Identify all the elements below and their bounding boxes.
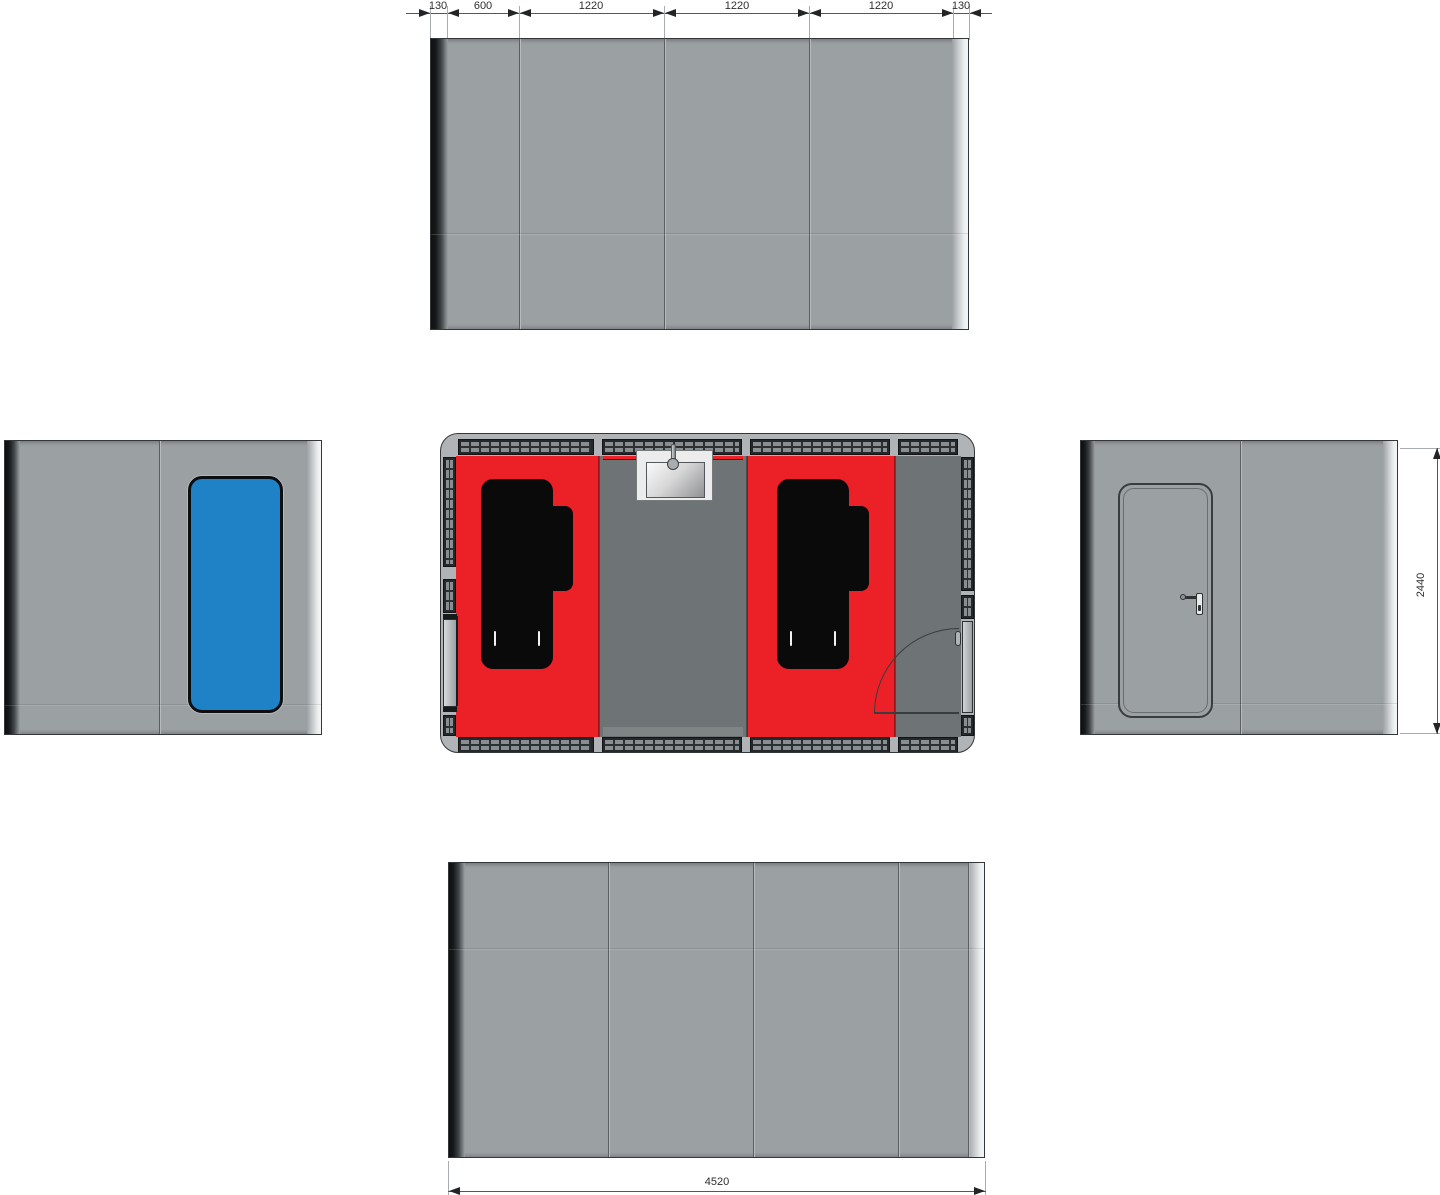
- wall-panel: [458, 439, 594, 455]
- corner-post-dark: [449, 863, 465, 1157]
- wall-panel: [443, 715, 456, 736]
- wall-insulation-pattern: [753, 740, 887, 750]
- dim-arrow: [665, 9, 676, 17]
- panel-seam: [753, 863, 755, 1157]
- panel-seam: [809, 39, 811, 329]
- door-open-position: [874, 712, 959, 714]
- corner-post-light: [968, 863, 984, 1157]
- window-jamb: [443, 614, 457, 619]
- floor-plan-view: [440, 433, 975, 753]
- dim-label-2440: 2440: [1415, 573, 1427, 597]
- wall-insulation-pattern: [446, 460, 453, 564]
- threshold-strip: [603, 727, 743, 736]
- toilet-left-cistern: [545, 506, 573, 591]
- wall-panel: [898, 439, 958, 455]
- dim-arrow: [974, 1187, 985, 1195]
- dim-arrow: [810, 9, 821, 17]
- door-handle-knob: [1180, 594, 1186, 600]
- right-end-elevation-view: [1080, 440, 1398, 735]
- toilet-seat-mark: [790, 631, 792, 646]
- wall-insulation-pattern: [964, 718, 971, 733]
- panel-seam: [1240, 441, 1242, 734]
- dim-arrow: [653, 9, 664, 17]
- wall-insulation-pattern: [753, 442, 887, 452]
- front-elevation-view: [448, 862, 985, 1158]
- door-leaf-plan: [962, 621, 973, 713]
- dim-label-130-left: 130: [429, 0, 447, 12]
- dim-label-600: 600: [474, 0, 492, 12]
- toilet-right: [777, 479, 849, 669]
- corner-post-dark: [431, 39, 448, 329]
- wall-insulation-pattern: [446, 718, 453, 733]
- wall-panel: [961, 715, 974, 736]
- wall-panel: [750, 737, 890, 753]
- extension-line: [985, 1161, 986, 1195]
- wall-insulation-pattern: [901, 442, 955, 452]
- dim-arrow: [1433, 723, 1440, 734]
- dim-arrow: [448, 9, 459, 17]
- panel-seam: [968, 863, 970, 1157]
- partition-wall: [746, 456, 748, 737]
- dimension-line: [1437, 448, 1438, 734]
- wall-insulation-pattern: [964, 598, 971, 616]
- panel-seam: [159, 441, 161, 734]
- corner-post-light: [952, 39, 968, 329]
- panel-seam: [519, 39, 521, 329]
- left-end-elevation-view: [4, 440, 322, 735]
- wall-panel: [961, 457, 974, 591]
- faucet-head: [667, 458, 679, 470]
- wall-panel: [602, 737, 742, 753]
- dimension-line: [448, 1191, 986, 1192]
- wall-panel: [458, 737, 594, 753]
- door: [1118, 483, 1213, 718]
- panel-seam: [664, 39, 666, 329]
- wall-panel: [961, 595, 974, 619]
- dim-label-4520: 4520: [705, 1176, 729, 1188]
- partition-wall: [598, 456, 600, 737]
- corner-post-dark: [1081, 441, 1095, 734]
- window: [188, 476, 283, 713]
- rear-elevation-view: [430, 38, 969, 330]
- toilet-seat-mark: [494, 631, 496, 646]
- wall-insulation-pattern: [901, 740, 955, 750]
- dim-label-1220-a: 1220: [579, 0, 603, 12]
- dim-label-130-right: 130: [952, 0, 970, 12]
- dim-arrow: [508, 9, 519, 17]
- corner-post-light: [307, 441, 321, 734]
- panel-seam: [898, 863, 900, 1157]
- dim-arrow: [520, 9, 531, 17]
- dim-arrow: [798, 9, 809, 17]
- dim-arrow: [449, 1187, 460, 1195]
- toilet-seat-mark: [834, 631, 836, 646]
- window-jamb: [443, 707, 457, 712]
- door-handle-plate: [1196, 593, 1203, 615]
- sink: [636, 450, 713, 501]
- dim-arrow: [970, 9, 981, 17]
- toilet-left: [481, 479, 553, 669]
- door-keyhole: [1198, 605, 1201, 611]
- dim-label-1220-b: 1220: [725, 0, 749, 12]
- toilet-right-cistern: [841, 506, 869, 591]
- wall-insulation-pattern: [461, 442, 591, 452]
- wall-panel: [443, 457, 456, 567]
- wall-panel: [443, 579, 456, 613]
- toilet-seat-mark: [538, 631, 540, 646]
- panel-joint-line: [431, 233, 968, 235]
- wall-insulation-pattern: [461, 740, 591, 750]
- wall-panel: [750, 439, 890, 455]
- wall-insulation-pattern: [446, 582, 453, 610]
- corner-post-dark: [5, 441, 20, 734]
- window-inner-face: [456, 616, 458, 706]
- dim-label-1220-c: 1220: [869, 0, 893, 12]
- corner-post-light: [1383, 441, 1397, 734]
- window-plan: [443, 619, 457, 707]
- dim-arrow: [1433, 448, 1440, 459]
- wall-panel: [898, 737, 958, 753]
- panel-joint-line: [449, 948, 984, 950]
- wall-insulation-pattern: [964, 460, 971, 588]
- wall-insulation-pattern: [605, 740, 739, 750]
- dimension-line: [406, 13, 992, 14]
- panel-seam: [608, 863, 610, 1157]
